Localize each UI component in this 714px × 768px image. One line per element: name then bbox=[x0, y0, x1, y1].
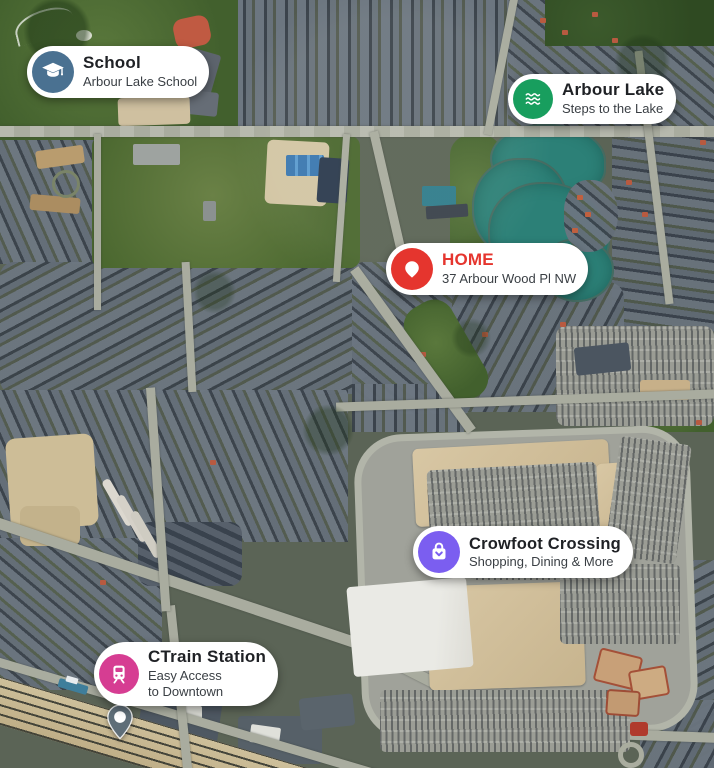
callout-subtitle: Steps to the Lake bbox=[562, 101, 664, 118]
playground bbox=[76, 30, 92, 41]
map-pin-icon[interactable] bbox=[106, 704, 134, 740]
location-pin-icon bbox=[391, 248, 433, 290]
red-roof bbox=[572, 228, 578, 233]
commercial-building bbox=[298, 693, 355, 730]
red-roof bbox=[700, 140, 706, 145]
callout-subtitle: Shopping, Dining & More bbox=[469, 554, 621, 571]
roundabout bbox=[618, 742, 644, 768]
red-roof bbox=[592, 12, 598, 17]
red-roof bbox=[696, 420, 702, 425]
red-roof bbox=[562, 30, 568, 35]
road bbox=[94, 134, 101, 310]
callout-title: Arbour Lake bbox=[562, 80, 664, 101]
plaza-building bbox=[605, 689, 641, 717]
callout-title: CTrain Station bbox=[148, 647, 266, 668]
red-roof bbox=[560, 322, 566, 327]
big-box-store-roof bbox=[346, 577, 473, 677]
train-icon bbox=[99, 654, 139, 694]
school-yard bbox=[118, 96, 191, 126]
callout-subtitle: 37 Arbour Wood Pl NW bbox=[442, 271, 576, 288]
map-callout-crowfoot[interactable]: Crowfoot Crossing Shopping, Dining & Mor… bbox=[413, 526, 633, 578]
callout-subtitle: Arbour Lake School bbox=[83, 74, 197, 91]
courtyard-circle bbox=[52, 170, 80, 198]
red-roof bbox=[482, 332, 488, 337]
commercial-building bbox=[574, 342, 632, 376]
callout-subtitle: Easy Access to Downtown bbox=[148, 668, 266, 701]
main-road bbox=[0, 126, 714, 137]
community-building bbox=[133, 144, 180, 165]
waves-icon bbox=[513, 79, 553, 119]
red-roof bbox=[642, 212, 648, 217]
residential-area bbox=[222, 0, 514, 132]
red-roof bbox=[612, 38, 618, 43]
park-hut bbox=[203, 201, 216, 221]
callout-title: School bbox=[83, 53, 197, 74]
red-roof bbox=[585, 212, 591, 217]
parking-lot bbox=[380, 690, 630, 752]
road bbox=[369, 131, 407, 262]
satellite-map: School Arbour Lake School Arbour Lake St… bbox=[0, 0, 714, 768]
lakeside-tennis-court bbox=[422, 186, 456, 206]
restaurant-building bbox=[630, 722, 648, 736]
map-callout-home[interactable]: HOME 37 Arbour Wood Pl NW bbox=[386, 243, 588, 295]
red-roof bbox=[626, 180, 632, 185]
graduation-cap-icon bbox=[32, 51, 74, 93]
shopping-bag-icon bbox=[418, 531, 460, 573]
red-roof bbox=[540, 18, 546, 23]
map-callout-arbour-lake[interactable]: Arbour Lake Steps to the Lake bbox=[508, 74, 676, 124]
map-callout-ctrain[interactable]: CTrain Station Easy Access to Downtown bbox=[94, 642, 278, 706]
parking-lot bbox=[556, 326, 714, 426]
callout-title: HOME bbox=[442, 250, 576, 271]
red-roof bbox=[210, 460, 216, 465]
callout-title: Crowfoot Crossing bbox=[469, 534, 621, 554]
map-callout-school[interactable]: School Arbour Lake School bbox=[27, 46, 209, 98]
red-roof bbox=[577, 195, 583, 200]
red-roof bbox=[100, 580, 106, 585]
tree-cover bbox=[545, 0, 714, 46]
